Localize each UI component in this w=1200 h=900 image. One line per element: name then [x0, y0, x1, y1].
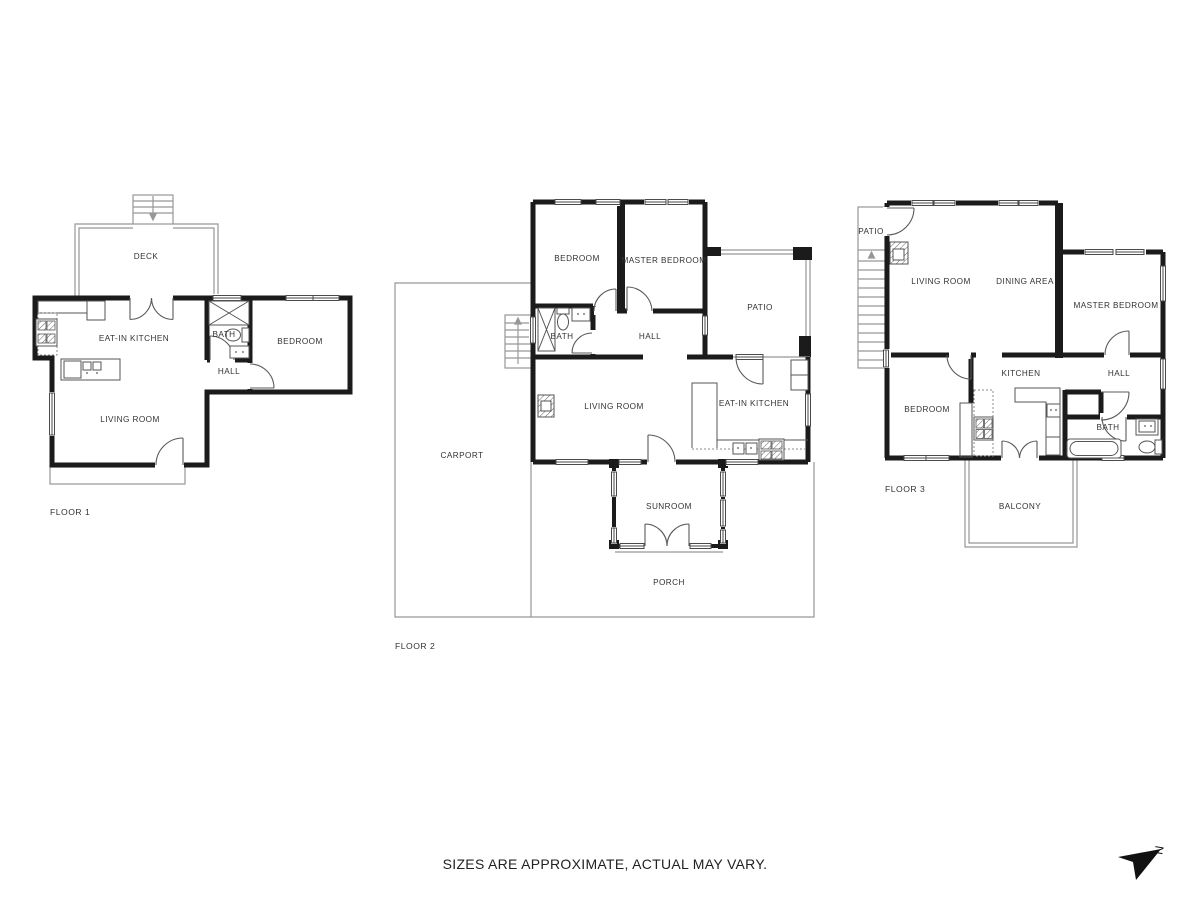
kitchen-island-sink-icon: [61, 359, 120, 380]
stove-icon: [759, 439, 784, 460]
room-label-kitchen-f2: EAT-IN KITCHEN: [719, 399, 789, 408]
room-label-bath-f2: BATH: [550, 332, 573, 341]
room-label-carport: CARPORT: [440, 451, 483, 460]
room-label-kitchen-f1: EAT-IN KITCHEN: [99, 334, 169, 343]
room-label-bath-f3: BATH: [1096, 423, 1119, 432]
fireplace-icon: [538, 395, 554, 417]
floorplan-canvas: DECK EAT-IN KITCHEN BATH BEDROOM HALL LI…: [0, 0, 1200, 900]
room-label-master-f3: MASTER BEDROOM: [1074, 301, 1159, 310]
toilet-icon: [557, 308, 569, 330]
room-label-patio-f3: PATIO: [858, 227, 884, 236]
room-label-bedroom-f2: BEDROOM: [554, 254, 599, 263]
stove-icon: [36, 319, 57, 346]
room-label-living-f2: LIVING ROOM: [584, 402, 644, 411]
room-label-dining-f3: DINING AREA: [996, 277, 1054, 286]
page-background: [0, 0, 1200, 900]
floor3-title: FLOOR 3: [885, 484, 925, 494]
floorplan-page: DECK EAT-IN KITCHEN BATH BEDROOM HALL LI…: [0, 0, 1200, 900]
stove-icon: [974, 417, 993, 440]
room-label-deck: DECK: [134, 252, 159, 261]
room-label-porch: PORCH: [653, 578, 685, 587]
sink-icon: [1136, 419, 1158, 435]
sink-icon: [572, 308, 590, 321]
floor2-title: FLOOR 2: [395, 641, 435, 651]
room-label-balcony: BALCONY: [999, 502, 1041, 511]
room-label-bedroom-f3: BEDROOM: [904, 405, 949, 414]
room-label-living-f3: LIVING ROOM: [911, 277, 971, 286]
fireplace-icon: [890, 242, 908, 264]
room-label-bath-f1: BATH: [212, 330, 235, 339]
room-label-patio-f2: PATIO: [747, 303, 773, 312]
room-label-hall-f1: HALL: [218, 367, 240, 376]
toilet-icon: [1139, 440, 1162, 454]
room-label-kitchen-f3: KITCHEN: [1001, 369, 1040, 378]
room-label-master-f2: MASTER BEDROOM: [622, 256, 707, 265]
fridge-icon: [791, 360, 808, 390]
floor1-title: FLOOR 1: [50, 507, 90, 517]
bathtub-icon: [1067, 439, 1121, 458]
disclaimer-text: SIZES ARE APPROXIMATE, ACTUAL MAY VARY.: [443, 856, 768, 872]
shower-icon: [209, 301, 249, 325]
room-label-sunroom: SUNROOM: [646, 502, 692, 511]
room-label-living-f1: LIVING ROOM: [100, 415, 160, 424]
room-label-bedroom-f1: BEDROOM: [277, 337, 322, 346]
sink-icon: [230, 346, 249, 358]
shower-icon: [538, 308, 555, 351]
room-label-hall-f3: HALL: [1108, 369, 1130, 378]
room-label-hall-f2: HALL: [639, 332, 661, 341]
